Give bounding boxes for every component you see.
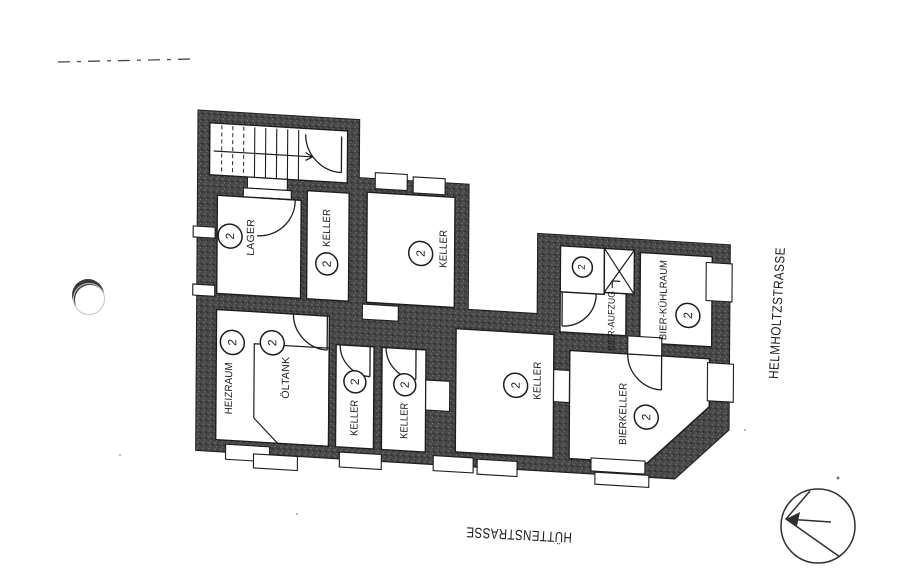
window-symbol <box>433 456 473 473</box>
occupancy-badge: 2 <box>344 370 366 393</box>
occupancy-badge: 2 <box>316 252 338 275</box>
occupancy-badge: 2 <box>409 241 433 266</box>
occupancy-number: 2 <box>265 339 279 347</box>
scan-speck <box>744 429 746 431</box>
punch-hole-artifact <box>72 279 105 315</box>
window-symbol <box>595 472 649 487</box>
occupancy-number: 2 <box>320 260 334 268</box>
occupancy-number: 2 <box>639 413 653 421</box>
window-symbol <box>707 363 733 403</box>
compass-circle <box>781 489 855 563</box>
window-symbol <box>193 284 215 296</box>
window-symbol <box>426 380 450 411</box>
floor-plan-svg: 2 LAGER 2 KELLER 2 KELLER 2 HEIZRAUM 2 Ö… <box>0 0 900 587</box>
occupancy-badge: 2 <box>260 330 284 355</box>
occupancy-number: 2 <box>225 338 239 346</box>
room-label-keller-center: KELLER <box>532 361 544 400</box>
room-label-heizraum: HEIZRAUM <box>223 362 235 415</box>
wall-opening <box>628 336 662 356</box>
occupancy-number: 2 <box>509 381 523 389</box>
occupancy-number: 2 <box>414 249 428 257</box>
stair-corridor <box>210 123 348 183</box>
window-symbol <box>413 177 445 195</box>
scanned-floor-plan-page: 2 LAGER 2 KELLER 2 KELLER 2 HEIZRAUM 2 Ö… <box>0 0 900 587</box>
occupancy-number: 2 <box>348 378 362 386</box>
occupancy-badge: 2 <box>220 330 244 355</box>
occupancy-badge: 2 <box>218 223 242 248</box>
room-label-keller-lower-1: KELLER <box>349 399 361 436</box>
occupancy-number: 2 <box>577 264 588 271</box>
room-label-bierkeller: BIERKELLER <box>617 382 629 445</box>
wall-opening <box>362 304 398 321</box>
occupancy-number: 2 <box>681 311 695 319</box>
room-bier-kuehlraum <box>640 252 713 346</box>
scan-speck <box>296 513 298 515</box>
occupancy-badge: 2 <box>394 373 416 396</box>
scan-speck <box>837 477 840 480</box>
occupancy-badge: 2 <box>504 373 528 398</box>
window-symbol <box>253 454 297 471</box>
room-label-oeltank: ÖLTANK <box>280 356 292 399</box>
building: 2 LAGER 2 KELLER 2 KELLER 2 HEIZRAUM 2 Ö… <box>192 110 736 497</box>
occupancy-badge: 2 <box>676 303 700 328</box>
window-symbol <box>477 459 517 476</box>
window-symbol <box>339 452 381 470</box>
room-label-keller-lower-2: KELLER <box>398 402 410 439</box>
occupancy-number: 2 <box>398 381 412 389</box>
occupancy-badge: 2 <box>572 256 592 277</box>
window-symbol <box>591 458 645 474</box>
window-symbol <box>193 226 215 238</box>
window-symbol <box>706 262 732 302</box>
room-label-keller-upper: KELLER <box>438 229 450 268</box>
street-label-helmholtzstrasse: HELMHOLTZSTRASSE <box>766 247 788 380</box>
room-label-bier-aufzug: BIER-AUFZUG <box>606 291 617 352</box>
window-symbol <box>375 173 407 191</box>
room-label-keller-upper-small: KELLER <box>321 208 333 247</box>
street-label-huettenstrasse: HÜTTENSTRASSE <box>466 523 573 547</box>
boundary-dashed-line <box>58 59 193 62</box>
scan-speck <box>119 454 121 456</box>
north-arrow-compass <box>781 477 855 564</box>
aufzug-shaft-icon <box>604 248 634 294</box>
room-label-bier-kuehlraum: BIER-KÜHLRAUM <box>657 260 670 341</box>
occupancy-badge: 2 <box>634 404 658 429</box>
room-label-lager: LAGER <box>245 218 257 256</box>
occupancy-number: 2 <box>223 232 237 240</box>
